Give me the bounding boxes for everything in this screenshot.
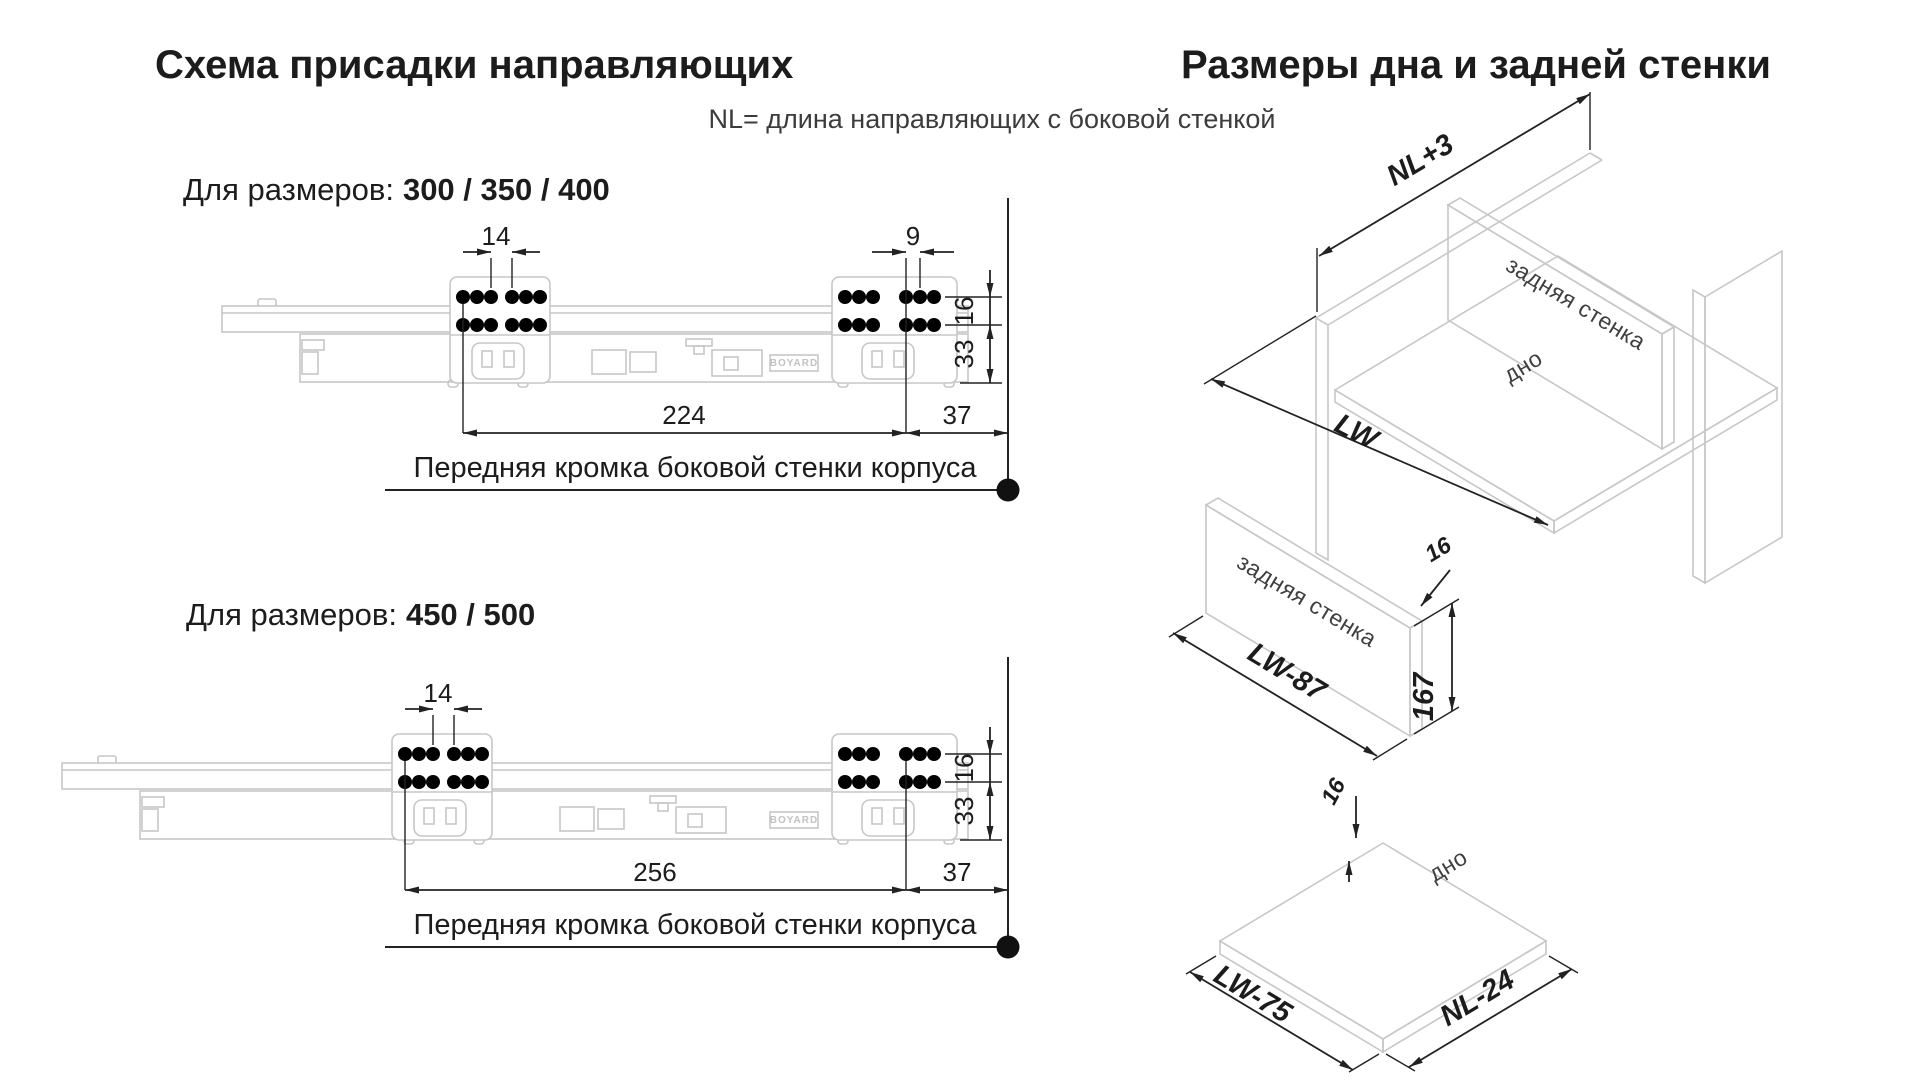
dim-16: 16	[949, 297, 979, 326]
back-panel-label: задняя стенка	[1233, 548, 1382, 652]
dim-16: 16	[949, 754, 979, 783]
brand-logo-text: BOYARD	[770, 815, 818, 826]
mounting-bracket-rear	[832, 734, 957, 840]
iso-back-panel-view: задняя стенка 16 167 LW-87	[1169, 498, 1459, 760]
dim-lw-minus-87: LW-87	[1242, 637, 1332, 709]
mounting-bracket-rear	[832, 277, 957, 383]
dim-lw-minus-75: LW-75	[1208, 959, 1298, 1030]
drawer-slide-side-view	[222, 277, 968, 387]
dim-bottom-thickness-16: 16	[1315, 774, 1350, 809]
dim-9: 9	[906, 221, 920, 251]
right-section-title: Размеры дна и задней стенки	[1181, 43, 1771, 87]
slide-diagram-450-500: Для размеров:450 / 500	[62, 597, 1020, 959]
front-edge-note: Передняя кромка боковой стенки корпуса	[413, 909, 977, 941]
cabinet-bottom-label: дно	[1499, 345, 1547, 388]
drawer-slide-side-view-long	[62, 734, 968, 844]
mounting-bracket-front	[450, 277, 550, 383]
diagram-canvas: Схема присадки направляющих Размеры дна …	[0, 0, 1920, 1080]
dim-33: 33	[949, 340, 979, 369]
nl-definition-note: NL= длина направляющих с боковой стенкой	[709, 104, 1276, 134]
dim-256: 256	[633, 857, 676, 887]
dim-224: 224	[662, 400, 705, 430]
diagram2-size-label: Для размеров:450 / 500	[186, 597, 535, 632]
cabinet-wireframe	[1316, 153, 1782, 583]
iso-cabinet-view: задняя стенка дно NL+3 LW	[1204, 92, 1782, 583]
dim-nl-minus-24: NL-24	[1435, 964, 1521, 1033]
front-edge-dot	[997, 479, 1020, 502]
iso-bottom-panel-view: дно 16 LW-75 NL-24	[1186, 774, 1578, 1072]
dim-back-thickness-16: 16	[1420, 531, 1455, 567]
bottom-panel-label: дно	[1424, 844, 1472, 887]
assembly-scheme-page: Схема присадки направляющих Размеры дна …	[0, 0, 1920, 1080]
back-panel-dimensions: 16 167 LW-87	[1169, 531, 1459, 760]
dim-14: 14	[482, 221, 511, 251]
bottom-panel-dimensions: 16 LW-75 NL-24	[1186, 774, 1578, 1072]
diagram1-size-label: Для размеров:300 / 350 / 400	[183, 172, 610, 207]
front-edge-dot	[997, 936, 1020, 959]
brand-logo-text: BOYARD	[770, 358, 818, 369]
left-side-wall	[1316, 318, 1328, 560]
dim-33: 33	[949, 797, 979, 826]
dim-167: 167	[1408, 671, 1440, 721]
cabinet-dimensions: NL+3 LW	[1204, 92, 1590, 525]
left-section-title: Схема присадки направляющих	[155, 43, 793, 87]
front-edge-note: Передняя кромка боковой стенки корпуса	[413, 452, 977, 484]
dim-37: 37	[943, 400, 972, 430]
mounting-bracket-front	[392, 734, 492, 840]
dim-nl-plus-3: NL+3	[1381, 128, 1459, 192]
cabinet-back-wall	[1448, 198, 1674, 449]
dim-37: 37	[943, 857, 972, 887]
dim-14: 14	[424, 678, 453, 708]
slide-diagram-300-350-400: Для размеров:300 / 350 / 400	[183, 172, 1020, 502]
